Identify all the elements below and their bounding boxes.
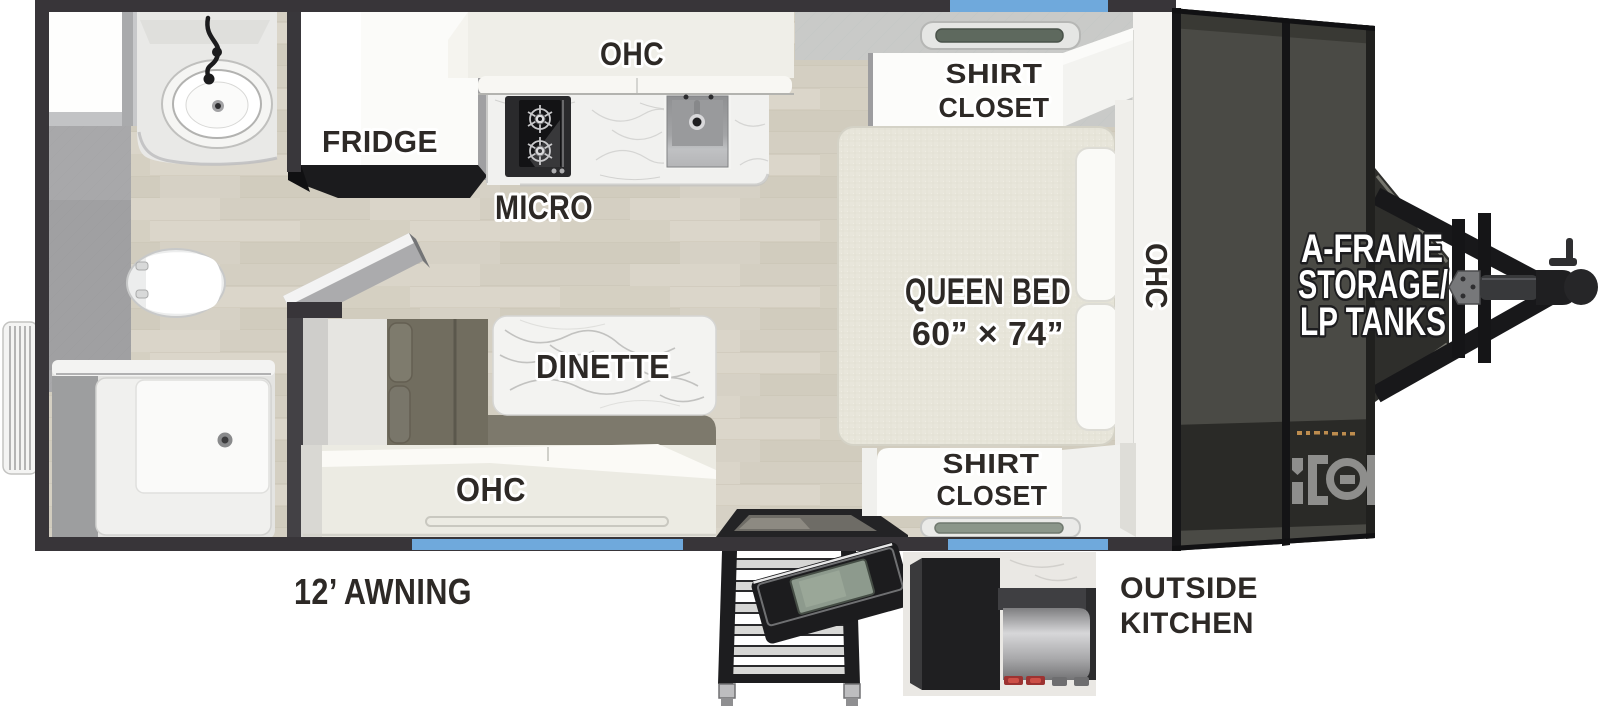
svg-text:KITCHEN: KITCHEN (1120, 607, 1254, 640)
svg-text:DINETTE: DINETTE (536, 348, 670, 385)
svg-text:SHIRT: SHIRT (946, 58, 1043, 89)
svg-text:OHC: OHC (456, 471, 526, 508)
svg-text:FRIDGE: FRIDGE (322, 124, 438, 159)
svg-text:60” × 74”: 60” × 74” (912, 315, 1064, 352)
svg-text:OHC: OHC (1139, 243, 1174, 309)
svg-text:CLOSET: CLOSET (939, 92, 1050, 123)
svg-text:LP TANKS: LP TANKS (1300, 300, 1446, 344)
svg-text:MICRO: MICRO (495, 189, 593, 227)
svg-text:OHC: OHC (600, 36, 664, 72)
svg-text:CLOSET: CLOSET (937, 480, 1048, 511)
svg-text:QUEEN BED: QUEEN BED (905, 271, 1071, 312)
svg-text:12’ AWNING: 12’ AWNING (294, 571, 472, 612)
svg-text:SHIRT: SHIRT (943, 448, 1040, 479)
svg-text:OUTSIDE: OUTSIDE (1120, 572, 1258, 605)
